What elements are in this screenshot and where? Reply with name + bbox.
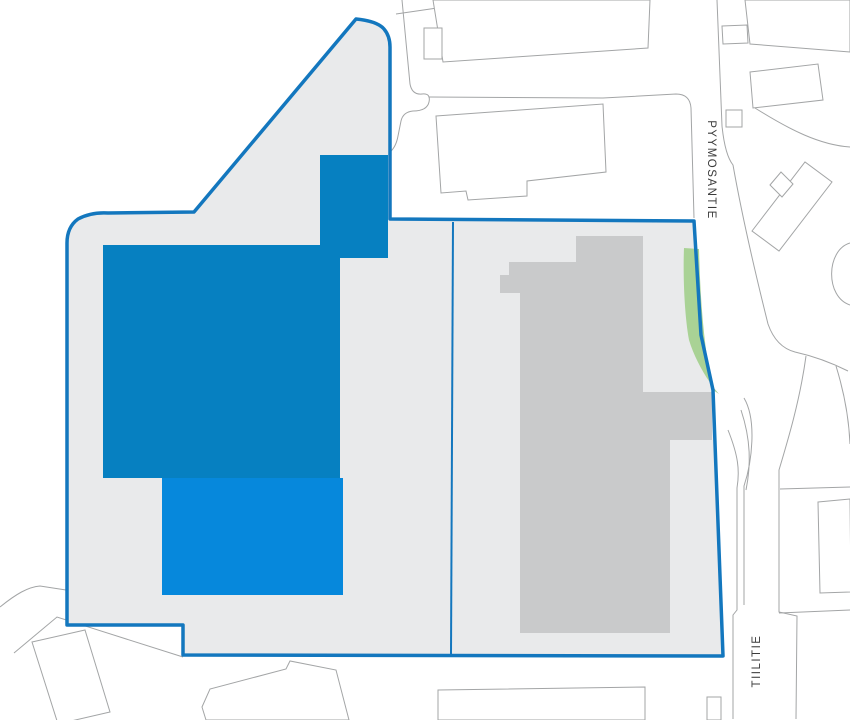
outside-building: [818, 499, 850, 593]
road-edge: [390, 0, 429, 152]
outside-building: [438, 687, 645, 720]
outside-building: [726, 110, 742, 127]
site-plan-map: PYYMOSANTIE TIILITIE: [0, 0, 850, 720]
outside-building: [707, 697, 721, 720]
road-median: [744, 398, 752, 605]
outside-building: [752, 162, 832, 251]
outside-building: [32, 630, 110, 720]
outside-building: [202, 661, 349, 720]
building-light-blue: [162, 478, 343, 595]
outside-building: [433, 0, 650, 62]
road-edge: [0, 586, 66, 607]
street-label-tiilitie: TIILITIE: [751, 635, 763, 688]
outside-building: [745, 0, 850, 52]
outside-building: [424, 28, 442, 59]
outside-building: [436, 104, 606, 200]
road-edge: [728, 430, 738, 719]
road-median: [741, 410, 749, 490]
outside-building: [722, 25, 748, 44]
parcel-line: [780, 487, 850, 489]
road-edge: [836, 366, 850, 444]
road-edge: [832, 243, 850, 305]
map-canvas: PYYMOSANTIE TIILITIE: [0, 0, 850, 720]
outside-building: [750, 64, 823, 108]
street-label-pyymosantie: PYYMOSANTIE: [705, 120, 717, 220]
parcel-line: [779, 610, 850, 613]
parcel-line: [755, 108, 850, 147]
road-edge: [779, 356, 806, 719]
